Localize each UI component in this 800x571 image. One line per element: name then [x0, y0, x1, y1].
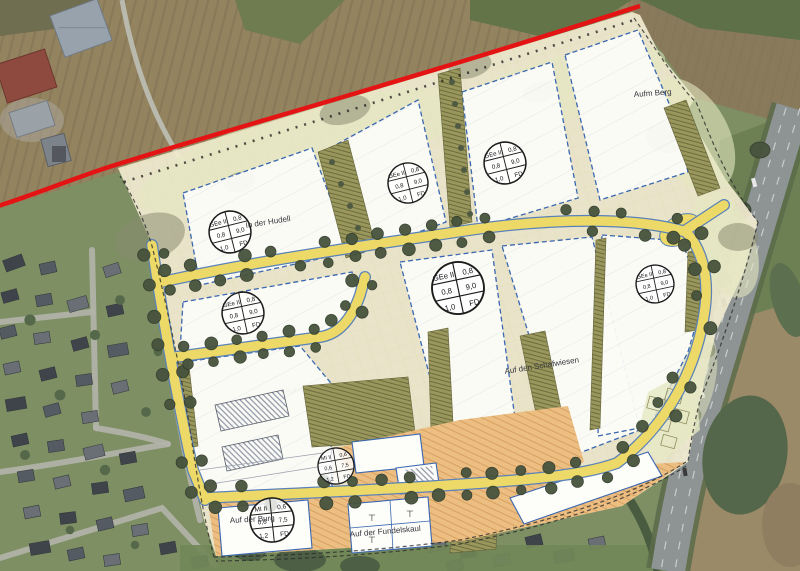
street-tree	[627, 455, 639, 467]
stamp-height: 7,5	[341, 462, 349, 469]
street-tree	[209, 357, 219, 367]
street-tree	[672, 213, 682, 223]
garden-tree	[20, 450, 30, 460]
street-tree	[678, 239, 690, 251]
street-tree	[403, 243, 416, 256]
street-tree	[572, 476, 584, 488]
garden-tree	[90, 330, 100, 340]
street-tree	[430, 239, 442, 251]
street-tree	[543, 462, 555, 474]
street-tree	[257, 331, 267, 341]
street-tree	[486, 467, 498, 479]
street-tree	[184, 396, 196, 408]
siteplan-aerial-map: GEe II 0,8 0,8 9,0 1,0 FD MI II 0,6 0,6 …	[0, 0, 800, 571]
street-tree	[196, 455, 207, 466]
street-tree	[184, 259, 196, 271]
street-tree	[695, 227, 708, 240]
stamp-gfz: 1,2	[259, 532, 269, 540]
stamp-height: 7,5	[278, 516, 288, 524]
street-tree	[320, 497, 333, 510]
street-tree	[589, 206, 599, 216]
street-tree	[462, 490, 472, 500]
street-tree	[367, 280, 377, 290]
street-tree	[653, 398, 663, 408]
street-tree	[667, 372, 678, 383]
street-tree	[309, 324, 319, 334]
street-tree	[689, 263, 702, 276]
street-tree	[375, 247, 386, 258]
garden-tree	[115, 295, 125, 305]
street-tree	[602, 472, 612, 482]
t-mark: ⊤	[368, 513, 376, 523]
street-tree	[234, 351, 246, 363]
street-tree	[240, 269, 253, 282]
street-tree	[432, 489, 445, 502]
street-tree	[372, 228, 384, 240]
street-tree	[704, 322, 717, 335]
street-tree	[295, 260, 306, 271]
street-tree	[159, 264, 171, 276]
street-tree	[236, 480, 248, 492]
garden-tree	[66, 526, 75, 535]
street-tree	[152, 339, 164, 351]
street-tree	[165, 399, 175, 409]
street-tree	[545, 482, 557, 494]
stamp-roof: FD	[280, 530, 290, 538]
street-tree	[284, 347, 294, 357]
map-canvas: GEe II 0,8 0,8 9,0 1,0 FD MI II 0,6 0,6 …	[0, 0, 800, 571]
street-tree	[516, 466, 526, 476]
house-roof	[59, 512, 76, 525]
garden-tree	[24, 314, 35, 325]
street-tree	[323, 258, 333, 268]
street-tree	[349, 496, 361, 508]
garden-tree	[131, 541, 139, 549]
street-tree	[637, 420, 649, 432]
street-tree	[708, 260, 721, 273]
street-tree	[189, 280, 201, 292]
house-roof	[103, 553, 120, 566]
street-tree	[692, 291, 702, 301]
street-tree	[239, 249, 252, 262]
street-tree	[138, 249, 150, 261]
street-tree	[616, 208, 626, 218]
street-tree	[165, 285, 175, 295]
street-tree	[209, 501, 222, 514]
street-tree	[185, 486, 197, 498]
street-tree	[480, 213, 490, 223]
street-tree	[617, 441, 629, 453]
street-tree	[283, 325, 295, 337]
street-tree	[183, 359, 194, 370]
street-tree	[516, 485, 526, 495]
street-tree	[670, 410, 682, 422]
street-tree	[238, 501, 249, 512]
street-tree	[232, 335, 242, 345]
street-tree	[667, 231, 680, 244]
street-tree	[404, 472, 415, 483]
stamp-grz: 0,6	[324, 465, 332, 472]
house-roof	[75, 373, 92, 386]
t-mark: ⊤	[406, 509, 414, 519]
street-tree	[457, 238, 467, 248]
street-tree	[258, 349, 268, 359]
street-tree	[461, 468, 471, 478]
stamp-use-type: MI II	[254, 505, 267, 513]
street-tree	[178, 341, 189, 352]
street-tree	[205, 337, 218, 350]
house-roof	[47, 439, 64, 452]
street-tree	[487, 486, 500, 499]
street-tree	[148, 310, 161, 323]
stamp-gfz: 1,2	[326, 477, 334, 484]
house-roof	[17, 469, 35, 482]
street-tree	[639, 230, 651, 242]
street-tree	[570, 457, 580, 467]
street-tree	[204, 480, 216, 492]
street-tree	[346, 233, 357, 244]
street-tree	[350, 251, 361, 262]
street-tree	[483, 231, 495, 243]
street-tree	[587, 226, 597, 236]
street-tree	[215, 275, 226, 286]
street-tree	[156, 368, 169, 381]
stamp-value: 0,6	[277, 503, 287, 511]
street-tree	[452, 216, 462, 226]
street-tree	[143, 279, 155, 291]
street-tree	[265, 246, 276, 257]
street-tree	[399, 224, 410, 235]
stamp-value: 0,6	[339, 452, 347, 459]
street-tree	[376, 474, 388, 486]
garden-tree	[141, 407, 151, 417]
street-tree	[159, 249, 169, 259]
stamp-roof: FD	[343, 474, 351, 481]
street-tree	[311, 343, 321, 353]
street-tree	[341, 301, 351, 311]
garden-tree	[100, 465, 110, 475]
house-roof	[131, 523, 149, 536]
street-tree	[405, 491, 418, 504]
street-tree	[176, 457, 187, 468]
house-roof	[81, 410, 99, 423]
garden-tree	[55, 390, 66, 401]
house-roof	[33, 331, 50, 344]
street-tree	[561, 205, 571, 215]
street-tree	[346, 274, 359, 287]
street-tree	[356, 306, 368, 318]
street-tree	[685, 382, 696, 393]
street-tree	[426, 220, 437, 231]
house-roof	[91, 481, 108, 494]
street-tree	[325, 314, 337, 326]
street-tree	[319, 236, 330, 247]
